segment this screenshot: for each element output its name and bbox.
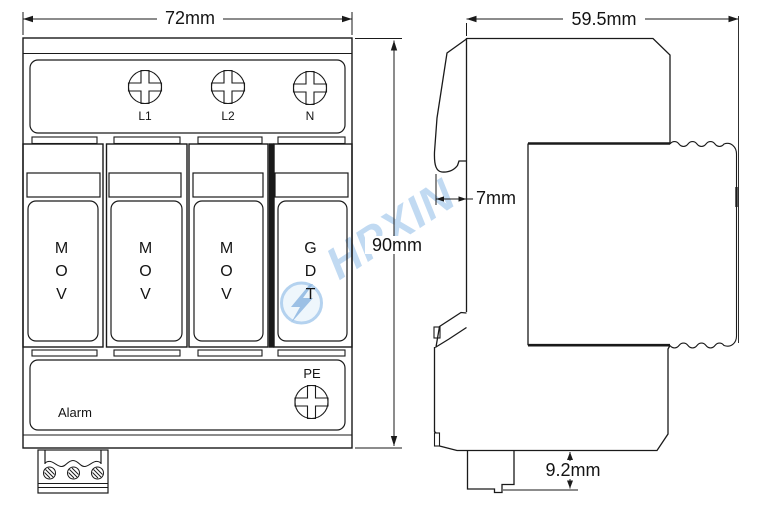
dim-side-depth: 59.5mm xyxy=(563,10,645,28)
terminal-cover xyxy=(30,60,345,133)
dim-front-width: 72mm xyxy=(157,9,223,27)
label-module-4: GDT xyxy=(302,240,318,309)
label-module-1: MOV xyxy=(53,240,69,309)
label-terminal-l1: L1 xyxy=(125,110,165,122)
module-divider xyxy=(270,144,274,347)
alarm-terminal-block xyxy=(38,450,108,493)
din-hook xyxy=(434,39,466,172)
side-lower-body xyxy=(440,346,671,451)
drawing-linework xyxy=(0,0,759,516)
label-terminal-n: N xyxy=(290,110,330,122)
side-view xyxy=(434,16,739,493)
label-module-2: MOV xyxy=(137,240,153,309)
label-pe: PE xyxy=(292,367,332,380)
label-terminal-l2: L2 xyxy=(208,110,248,122)
screw-l2-icon xyxy=(212,71,245,104)
screw-pe-icon xyxy=(295,386,328,419)
din-clip xyxy=(436,313,467,348)
dim-din-clip: 7mm xyxy=(476,189,516,207)
spd-dimension-drawing: HPXIN xyxy=(0,0,759,516)
side-terminal-block xyxy=(468,451,515,493)
dim-front-height: 90mm xyxy=(365,236,429,254)
label-alarm: Alarm xyxy=(58,406,92,419)
dim-terminal-depth: 9.2mm xyxy=(538,461,608,479)
terminal-screw-icons xyxy=(44,467,104,479)
din-foot xyxy=(435,433,440,446)
module-bottom-tabs xyxy=(32,350,345,356)
side-upper-body xyxy=(467,39,671,144)
module-top-tabs xyxy=(32,137,345,144)
module-block-profile xyxy=(670,142,737,348)
label-module-3: MOV xyxy=(218,240,234,309)
screw-n-icon xyxy=(294,72,327,105)
screw-l1-icon xyxy=(129,71,162,104)
